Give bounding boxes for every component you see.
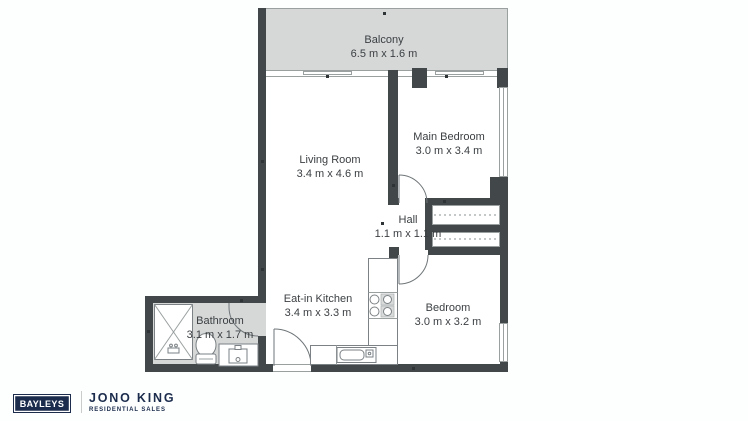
marker-dot <box>261 160 264 163</box>
wall-hall-top-stub <box>389 198 399 205</box>
wall-right-exterior <box>500 70 508 372</box>
marker-dot <box>392 307 395 310</box>
room-dims: 3.0 m x 3.2 m <box>415 315 482 329</box>
room-name: Bedroom <box>415 301 482 315</box>
room-label-main-bedroom: Main Bedroom 3.0 m x 3.4 m <box>413 130 485 158</box>
agent-block: JONO KING RESIDENTIAL SALES <box>89 392 175 413</box>
wardrobe <box>432 205 500 225</box>
marker-dot <box>445 75 448 78</box>
room-dims: 6.5 m x 1.6 m <box>351 47 418 61</box>
room-dims: 3.4 m x 4.6 m <box>297 167 364 181</box>
room-label-balcony: Balcony 6.5 m x 1.6 m <box>351 33 418 61</box>
marker-dot <box>412 367 415 370</box>
wall-bedroom-top <box>428 247 508 255</box>
wall-post <box>412 68 427 88</box>
wall-left-exterior <box>258 8 266 303</box>
room-dims: 1.1 m x 1.1 m <box>375 227 442 241</box>
marker-dot <box>503 130 506 133</box>
room-label-bathroom: Bathroom 3.1 m x 1.7 m <box>187 314 254 342</box>
floor-plan: Balcony 6.5 m x 1.6 m Living Room 3.4 m … <box>0 0 748 421</box>
marker-dot <box>261 268 264 271</box>
wall-bathroom-right <box>258 336 266 364</box>
room-dims: 3.0 m x 3.4 m <box>413 144 485 158</box>
marker-dot <box>383 12 386 15</box>
wall-closet-top <box>427 198 508 205</box>
agent-tagline: RESIDENTIAL SALES <box>89 407 175 413</box>
wardrobe <box>432 232 500 247</box>
marker-dot <box>443 200 446 203</box>
bayleys-logo: BAYLEYS <box>13 394 71 413</box>
brand-divider <box>81 391 82 413</box>
room-name: Hall <box>375 213 442 227</box>
agency-name: BAYLEYS <box>20 399 64 409</box>
wall-kitchen-bedroom <box>389 255 398 372</box>
wall-hall-bottom-stub <box>389 247 399 255</box>
room-dims: 3.4 m x 3.3 m <box>284 306 352 320</box>
room-label-bedroom: Bedroom 3.0 m x 3.2 m <box>415 301 482 329</box>
room-name: Balcony <box>351 33 418 47</box>
room-label-living-room: Living Room 3.4 m x 4.6 m <box>297 153 364 181</box>
marker-dot <box>147 330 150 333</box>
brand-bar: BAYLEYS JONO KING RESIDENTIAL SALES <box>13 391 175 413</box>
slider-panel <box>435 71 484 75</box>
room-label-hall: Hall 1.1 m x 1.1 m <box>375 213 442 241</box>
room-name: Bathroom <box>187 314 254 328</box>
marker-dot <box>503 340 506 343</box>
wall-bathroom-top <box>145 296 266 303</box>
entry-door-opening <box>273 364 311 372</box>
wall-bathroom-left <box>145 296 153 372</box>
room-name: Main Bedroom <box>413 130 485 144</box>
agent-name: JONO KING <box>89 392 175 405</box>
room-name: Living Room <box>297 153 364 167</box>
room-label-kitchen: Eat-in Kitchen 3.4 m x 3.3 m <box>284 292 352 320</box>
marker-dot <box>326 75 329 78</box>
room-dims: 3.1 m x 1.7 m <box>187 328 254 342</box>
wall-bottom-exterior <box>145 364 508 372</box>
room-name: Eat-in Kitchen <box>284 292 352 306</box>
marker-dot <box>240 299 243 302</box>
marker-dot <box>392 184 395 187</box>
